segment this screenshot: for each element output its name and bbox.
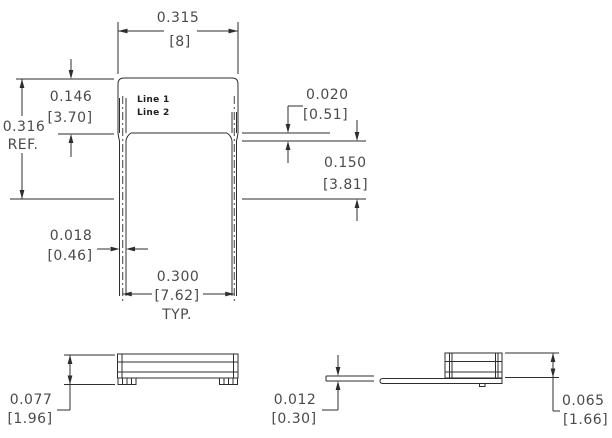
dim-lead-thickness-mm: [0.46] (47, 248, 92, 264)
dim-standoff-inches: 0.020 (306, 87, 349, 103)
end-view-lead-strip (380, 379, 502, 384)
dim-lead-length-mm: [3.81] (323, 177, 368, 193)
arrowhead (225, 292, 234, 297)
dim-lead-spacing-note: TYP. (161, 307, 192, 323)
dim-standoff: 0.020 [0.51] (242, 87, 366, 163)
arrowhead (229, 29, 239, 34)
dim-end-body-thickness: 0.065 [1.66] (505, 353, 608, 428)
dim-lead-spacing: 0.300 [7.62] TYP. (123, 269, 235, 323)
arrowhead (355, 132, 360, 141)
dim-seated-height-mm: [1.96] (7, 411, 52, 427)
body-marking-line2: Line 2 (137, 108, 170, 118)
dim-lead-spacing-inches: 0.300 (157, 269, 200, 285)
arrowhead (68, 376, 73, 385)
technical-drawing-page: Line 1 Line 2 0.315 [8] 0.146 [3.70] 0.3… (0, 0, 612, 438)
arrowhead (123, 292, 132, 297)
dim-overall-height-note: REF. (8, 137, 39, 153)
arrowhead (336, 367, 341, 376)
dim-end-lead-thickness-inches: 0.012 (274, 392, 317, 408)
arrowhead (69, 134, 74, 143)
dim-lead-spacing-mm: [7.62] (154, 288, 199, 304)
dim-body-height-mm: [3.70] (47, 110, 92, 126)
dim-width: 0.315 [8] (118, 10, 238, 74)
dim-end-lead-thickness-mm: [0.30] (271, 411, 316, 427)
arrowhead (126, 247, 135, 252)
dim-body-height-inches: 0.146 (50, 89, 93, 105)
arrowhead (118, 29, 128, 34)
dim-lead-length-inches: 0.150 (324, 155, 367, 171)
dim-lead-length: 0.150 [3.81] (242, 120, 368, 221)
end-view-lead-stub (480, 384, 486, 387)
arrowhead (111, 247, 120, 252)
arrowhead (551, 369, 556, 378)
arrowhead (68, 355, 73, 364)
dim-lead-thickness: 0.018 [0.46] (47, 228, 148, 264)
arrowhead (20, 79, 25, 88)
technical-drawing-canvas: Line 1 Line 2 0.315 [8] 0.146 [3.70] 0.3… (0, 0, 612, 438)
dim-overall-height-inches: 0.316 (3, 119, 46, 135)
dim-width-mm: [8] (169, 34, 190, 50)
body-marking-line1: Line 1 (137, 95, 170, 105)
dim-seated-height-inches: 0.077 (10, 392, 53, 408)
arrowhead (551, 353, 556, 362)
dim-standoff-mm: [0.51] (303, 107, 348, 123)
component-body-outline (118, 78, 238, 133)
end-view (326, 353, 502, 387)
dim-end-body-thickness-mm: [1.66] (563, 412, 608, 428)
dim-end-body-thickness-inches: 0.065 (562, 393, 605, 409)
arrowhead (69, 70, 74, 79)
dim-width-inches: 0.315 (157, 10, 200, 26)
dim-end-lead-thickness: 0.012 [0.30] (271, 355, 340, 427)
arrowhead (355, 199, 360, 208)
dim-lead-thickness-inches: 0.018 (50, 228, 93, 244)
side-view (118, 354, 239, 385)
side-view-body (118, 354, 239, 378)
arrowhead (286, 124, 291, 133)
arrowhead (336, 381, 341, 390)
arrowhead (286, 141, 291, 150)
dim-seated-height: 0.077 [1.96] (7, 355, 115, 427)
arrowhead (20, 190, 25, 199)
end-view-body (445, 353, 502, 378)
